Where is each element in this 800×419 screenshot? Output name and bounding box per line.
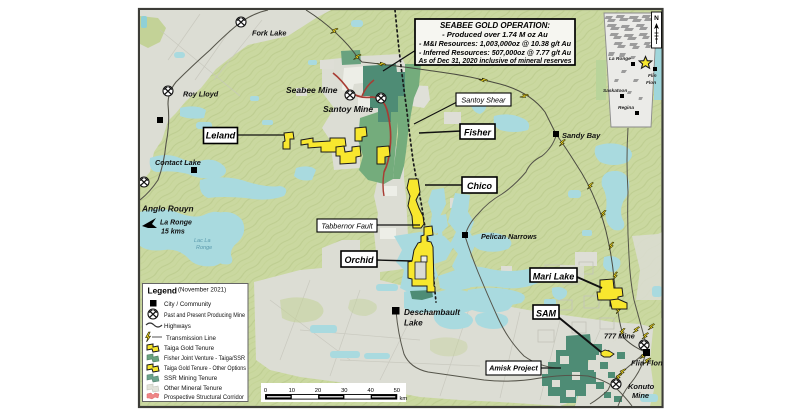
- svg-text:10: 10: [289, 388, 295, 394]
- svg-text:Anglo Rouyn: Anglo Rouyn: [141, 204, 194, 214]
- svg-text:N: N: [654, 15, 659, 22]
- svg-text:- M&I Resources: 1,003,000oz @: - M&I Resources: 1,003,000oz @ 10.38 g/t…: [419, 39, 571, 48]
- svg-text:Transmission Line: Transmission Line: [166, 335, 217, 342]
- svg-text:Other Mineral Tenure: Other Mineral Tenure: [164, 385, 223, 392]
- svg-text:La Ronge: La Ronge: [609, 56, 631, 62]
- svg-text:SEABEE GOLD OPERATION:: SEABEE GOLD OPERATION:: [440, 21, 550, 30]
- svg-text:0: 0: [264, 388, 267, 394]
- svg-text:La Ronge: La Ronge: [160, 220, 192, 227]
- svg-text:Flon: Flon: [646, 80, 656, 86]
- svg-text:Santoy Shear: Santoy Shear: [461, 96, 506, 105]
- svg-text:Leland: Leland: [206, 131, 236, 141]
- svg-text:SAM: SAM: [536, 308, 557, 318]
- svg-text:50: 50: [394, 388, 400, 394]
- svg-text:15 kms: 15 kms: [161, 229, 185, 236]
- svg-text:Lake: Lake: [404, 319, 423, 328]
- svg-text:km: km: [400, 396, 408, 402]
- svg-text:777 Mine: 777 Mine: [604, 332, 635, 341]
- svg-text:Santoy Mine: Santoy Mine: [323, 104, 373, 114]
- svg-text:Konuto: Konuto: [628, 382, 655, 391]
- svg-text:Fisher: Fisher: [464, 127, 492, 137]
- svg-text:Past and Present Producing Min: Past and Present Producing Mine: [164, 312, 245, 319]
- svg-text:Sandy Bay: Sandy Bay: [562, 131, 601, 140]
- svg-text:(November 2021): (November 2021): [178, 287, 226, 294]
- svg-text:Fisher Joint Venture - Taiga/S: Fisher Joint Venture - Taiga/SSR: [164, 355, 245, 362]
- svg-text:Contact Lake: Contact Lake: [155, 158, 201, 167]
- svg-text:Taiga Gold Tenure: Taiga Gold Tenure: [164, 345, 215, 352]
- svg-text:City / Community: City / Community: [164, 301, 212, 308]
- svg-text:Flin: Flin: [648, 73, 657, 79]
- svg-text:Mari Lake: Mari Lake: [533, 271, 575, 281]
- svg-text:Saskatoon: Saskatoon: [603, 88, 627, 94]
- svg-text:Lac La: Lac La: [194, 238, 211, 244]
- svg-text:Ronge: Ronge: [196, 245, 212, 251]
- svg-text:Highways: Highways: [164, 323, 191, 330]
- svg-text:Amisk Project: Amisk Project: [488, 364, 538, 373]
- svg-text:Orchid: Orchid: [344, 255, 374, 265]
- svg-text:Seabee Mine: Seabee Mine: [286, 85, 338, 95]
- svg-text:Legend: Legend: [148, 286, 178, 296]
- svg-text:Pelican Narrows: Pelican Narrows: [481, 232, 537, 241]
- svg-text:SSR Mining Tenure: SSR Mining Tenure: [164, 375, 218, 382]
- svg-text:Fork Lake: Fork Lake: [252, 29, 286, 38]
- svg-text:Prospective Structural Corrido: Prospective Structural Corridor: [164, 394, 244, 401]
- svg-text:Roy Lloyd: Roy Lloyd: [183, 90, 219, 99]
- svg-text:Mine: Mine: [632, 391, 649, 400]
- svg-text:Regina: Regina: [618, 105, 634, 111]
- svg-text:40: 40: [367, 388, 373, 394]
- svg-text:Tabbernor Fault: Tabbernor Fault: [321, 222, 373, 231]
- svg-text:30: 30: [341, 388, 347, 394]
- svg-text:Flin Flon: Flin Flon: [631, 359, 663, 368]
- svg-text:- Produced over 1.74 M oz Au: - Produced over 1.74 M oz Au: [442, 30, 548, 39]
- svg-text:Chico: Chico: [467, 181, 493, 191]
- svg-text:As of Dec 31, 2020 inclusive o: As of Dec 31, 2020 inclusive of mineral …: [418, 56, 572, 65]
- svg-text:Deschambault: Deschambault: [404, 308, 460, 317]
- svg-text:Taiga Gold Tenure - Other Opti: Taiga Gold Tenure - Other Options: [164, 365, 246, 372]
- svg-text:20: 20: [315, 388, 321, 394]
